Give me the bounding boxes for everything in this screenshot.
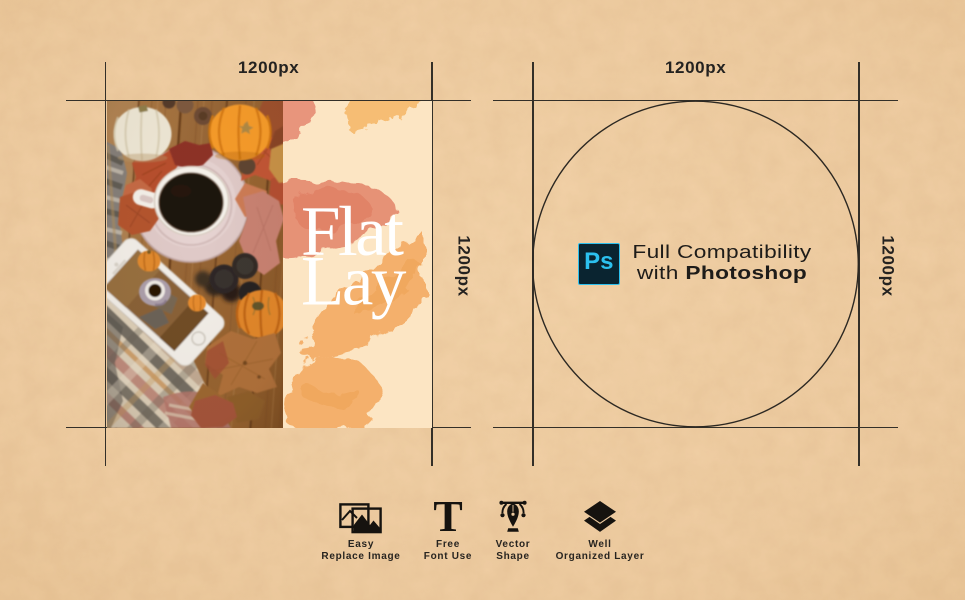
svg-text:Lay: Lay [301, 243, 407, 321]
svg-text:T: T [433, 499, 462, 533]
